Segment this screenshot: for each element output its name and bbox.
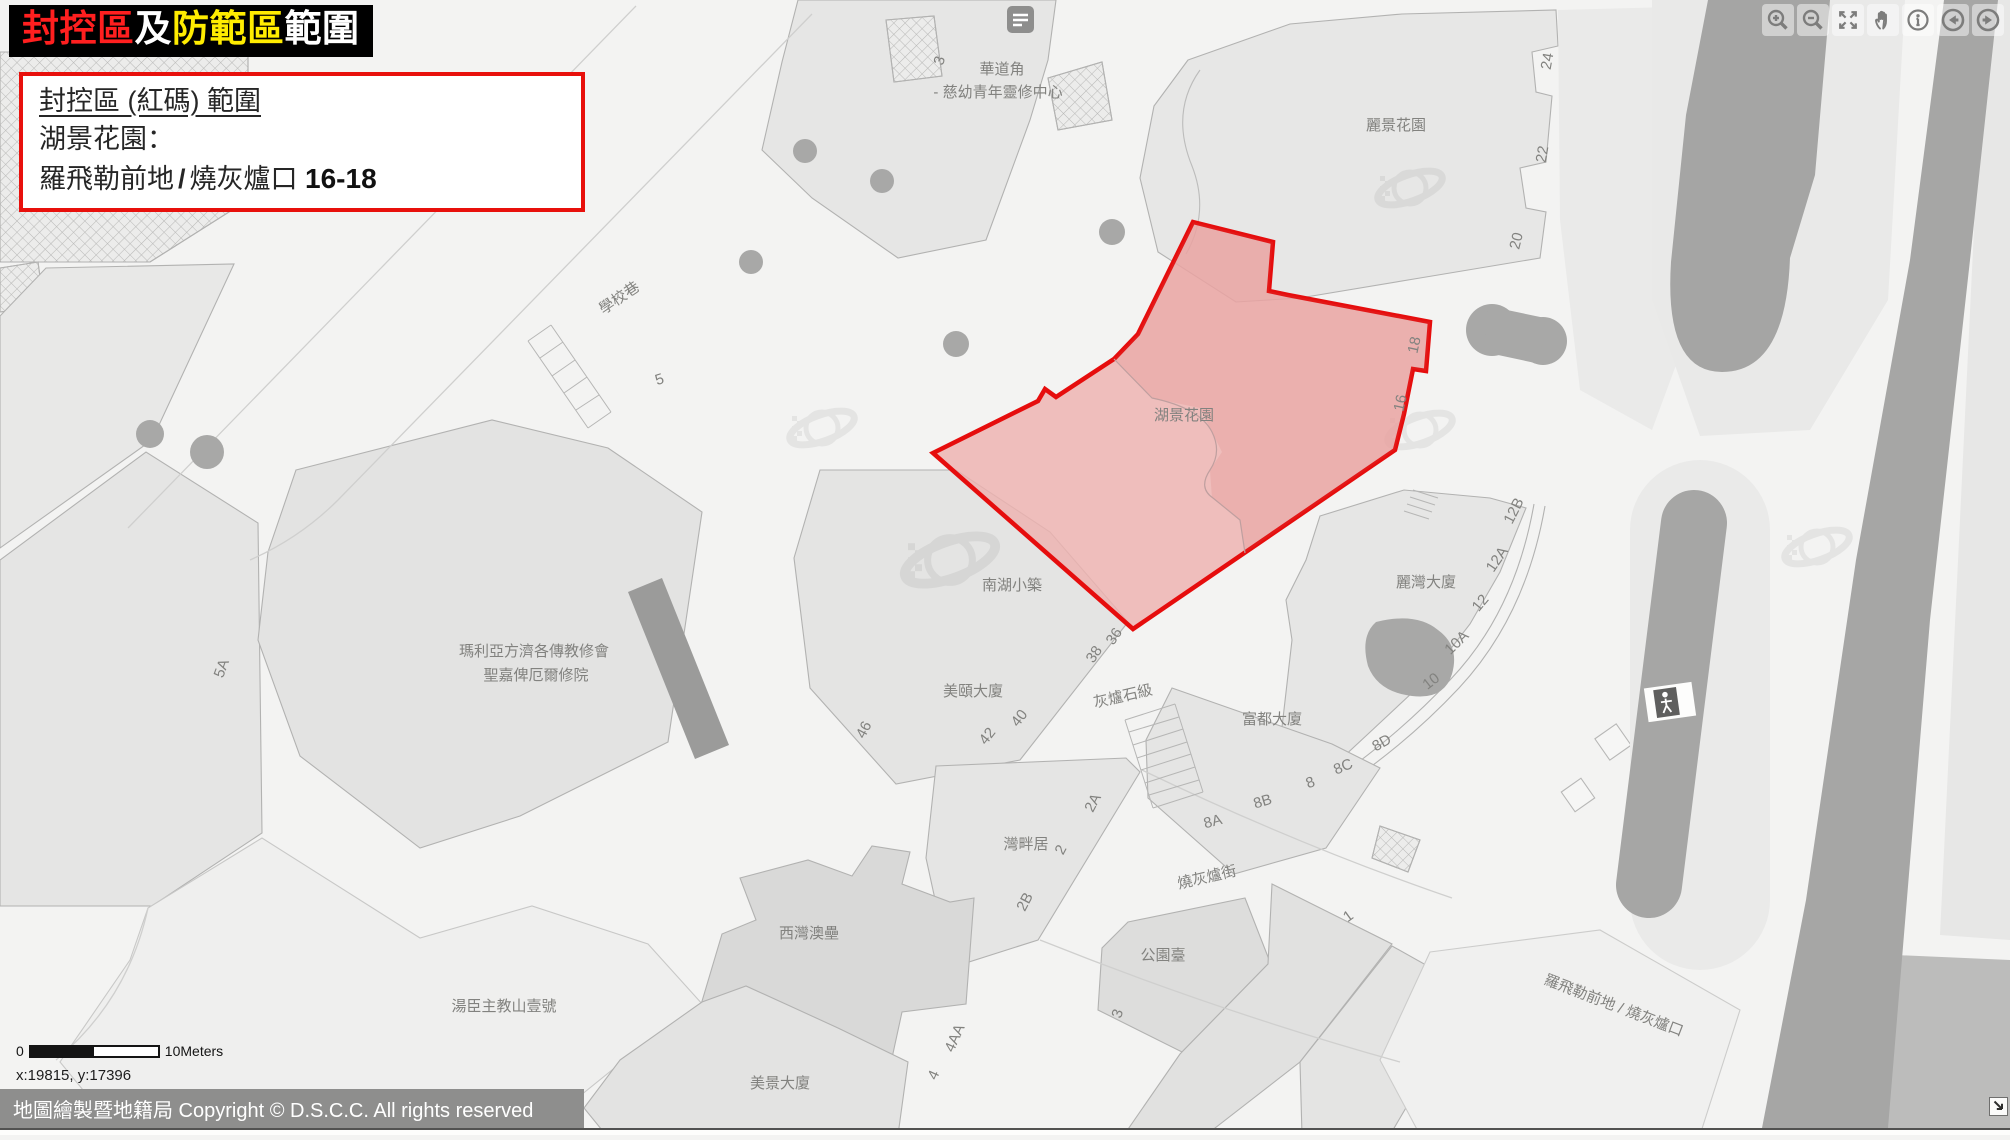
map-label: 聖嘉俾厄爾修院 <box>483 666 588 684</box>
scale-distance-label: 10Meters <box>165 1043 223 1059</box>
bottom-margin <box>0 1130 2010 1135</box>
info-street-a: 羅飛勒前地 <box>39 164 174 194</box>
map-label: 16 <box>1391 393 1411 413</box>
map-label: 公園臺 <box>1140 947 1185 964</box>
map-label: 24 <box>1538 52 1558 71</box>
pedestrian-crossing-icon <box>1644 682 1696 722</box>
title-segment: 及 <box>135 8 173 49</box>
map-label: 灣畔居 <box>1003 836 1048 853</box>
arrow-diagonal-icon <box>1992 1099 2005 1115</box>
info-address: 羅飛勒前地/燒灰爐口 16-18 <box>39 159 565 199</box>
info-range: 16-18 <box>305 163 377 194</box>
title-segment: 防範區 <box>172 8 285 49</box>
map-label: 湯臣主教山壹號 <box>451 998 556 1015</box>
pan-button[interactable] <box>1867 4 1899 36</box>
title-segment: 範圍 <box>285 8 360 49</box>
copyright-text: 地圖繪製暨地籍局 Copyright © D.S.C.C. All rights… <box>13 1094 533 1123</box>
info-title: 封控區 (紅碼) 範圍 <box>39 82 565 120</box>
scale-zero-label: 0 <box>16 1043 24 1059</box>
map-label: 美頤大廈 <box>943 682 1003 700</box>
hand-icon <box>1870 7 1896 33</box>
zoom-out-button[interactable] <box>1797 4 1829 36</box>
info-street-b: 燒灰爐口 <box>190 164 298 194</box>
map-label: 南湖小築 <box>982 576 1042 594</box>
cursor-coordinates: x:19815, y:17396 <box>16 1067 131 1084</box>
overview-map-button[interactable] <box>1989 1097 2008 1116</box>
info-building: 湖景花園： <box>39 120 565 158</box>
title-banner: 封控區及防範區範圍 <box>9 5 373 57</box>
scale-bar: 0 10Meters <box>16 1043 223 1059</box>
map-label: 湖景花園 <box>1154 407 1214 424</box>
map-label: 麗景花園 <box>1366 117 1426 134</box>
map-label: 22 <box>1533 145 1553 164</box>
map-label: 華道角 <box>979 61 1024 78</box>
map-label: 西灣澳壘 <box>779 925 839 942</box>
arrow-left-circle-icon <box>1940 7 1966 33</box>
magnifier-minus-icon <box>1800 7 1826 33</box>
map-label: 18 <box>1405 335 1425 355</box>
full-extent-button[interactable] <box>1832 4 1864 36</box>
next-extent-button[interactable] <box>1972 4 2004 36</box>
zoom-in-button[interactable] <box>1762 4 1794 36</box>
map-label: 瑪利亞方濟各傳教修會 <box>459 643 609 660</box>
identify-button[interactable] <box>1902 4 1934 36</box>
expand-arrows-icon <box>1835 7 1861 33</box>
map-label: 麗灣大廈 <box>1396 573 1456 591</box>
lockdown-info-box: 封控區 (紅碼) 範圍 湖景花園： 羅飛勒前地/燒灰爐口 16-18 <box>19 72 585 212</box>
scale-bar-graphic <box>29 1045 160 1058</box>
map-toolbar <box>1762 4 2004 36</box>
map-label: - 慈幼青年靈修中心 <box>933 84 1062 101</box>
map-label: 富都大廈 <box>1242 710 1302 728</box>
info-circle-icon <box>1905 7 1931 33</box>
arrow-right-circle-icon <box>1975 7 2001 33</box>
title-segment: 封控區 <box>22 8 135 49</box>
layers-poi-icon <box>1007 6 1034 33</box>
info-slash: / <box>174 164 190 194</box>
map-label: 美景大廈 <box>750 1074 810 1092</box>
magnifier-plus-icon <box>1765 7 1791 33</box>
copyright-bar: 地圖繪製暨地籍局 Copyright © D.S.C.C. All rights… <box>0 1089 584 1128</box>
previous-extent-button[interactable] <box>1937 4 1969 36</box>
